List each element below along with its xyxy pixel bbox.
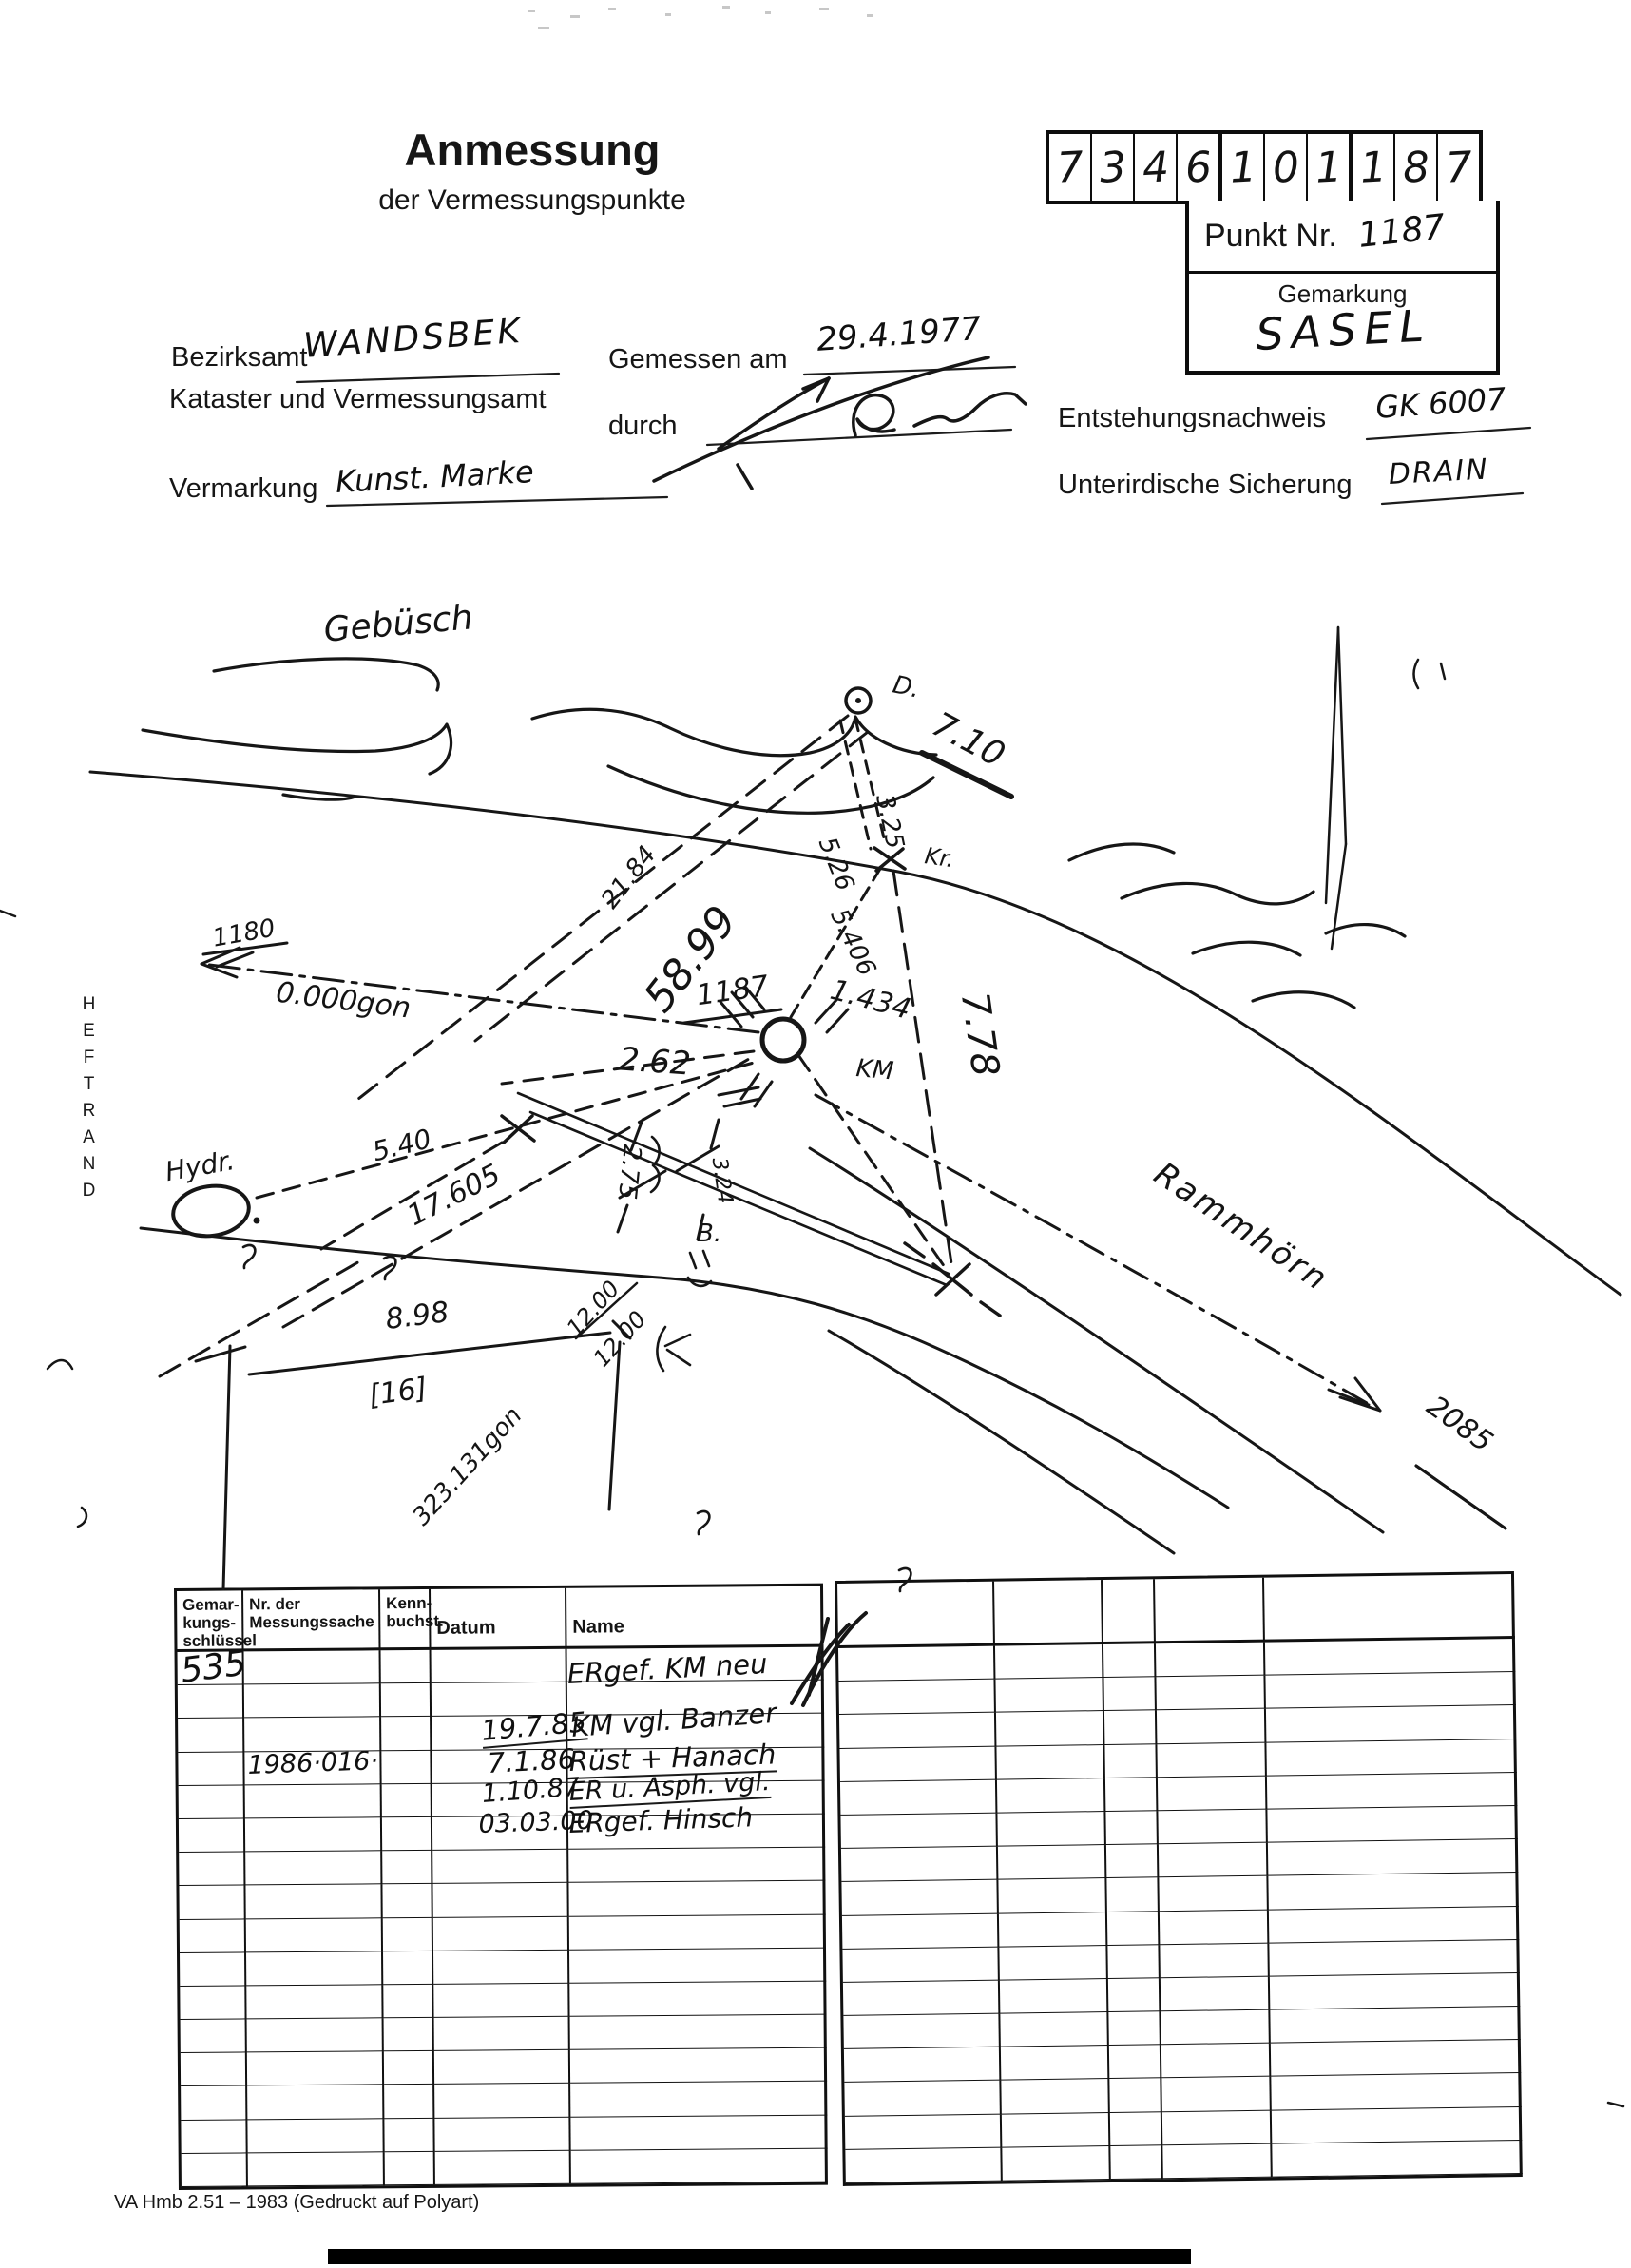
- table-cell: [1270, 2007, 1520, 2044]
- table-cell: [245, 1817, 382, 1852]
- table-cell: [1002, 2113, 1110, 2148]
- code-digit-cell: 4: [1135, 134, 1178, 201]
- page-subtitle: der Vermessungspunkte: [285, 184, 779, 217]
- table-cell: [996, 1711, 1104, 1746]
- table-cell: [1104, 1711, 1157, 1745]
- table-cell: [843, 2014, 1000, 2049]
- table-cell: [432, 1883, 568, 1917]
- bezirksamt-value: WANDSBEK: [302, 312, 524, 366]
- sketch-label-point-d-height: 7.10: [926, 705, 1011, 776]
- sketch-label-1180: 1180: [210, 914, 277, 953]
- x2-cross: [905, 1243, 1000, 1316]
- table-cell: [1160, 1910, 1269, 1945]
- entry-schluessel-row1: 535: [179, 1644, 248, 1691]
- table-cell: [841, 1847, 998, 1882]
- table-cell: [384, 2118, 434, 2152]
- table-cell: [1268, 1839, 1518, 1876]
- table-cell: [569, 1981, 826, 2016]
- entry-name-row6: ERgef. Hinsch: [568, 1801, 754, 1839]
- table-cell: [244, 1683, 381, 1718]
- table-cell: [382, 1884, 432, 1918]
- table-cell: [569, 1948, 826, 1983]
- table-cell: [432, 1850, 568, 1884]
- table-cell: [1106, 1878, 1159, 1912]
- table-cell: [434, 2117, 570, 2151]
- sketch-label-5-406: 5.406: [824, 904, 881, 980]
- table-cell: [1161, 1977, 1270, 2012]
- sketch-label-323gon: 323.131gon: [408, 1401, 528, 1530]
- table-cell: [571, 2148, 828, 2183]
- table-cell: [382, 1784, 432, 1818]
- table-cell: [1159, 1876, 1268, 1912]
- sketch-label-8-98: 8.98: [384, 1296, 451, 1336]
- table-cell: [840, 1779, 997, 1815]
- table-cell: [1110, 2112, 1162, 2146]
- table-header-kennbuchstabe: Kenn- buchst.: [380, 1589, 432, 1650]
- sketch-label-12-00-b: 12.00: [588, 1306, 652, 1373]
- table-cell: [247, 2052, 384, 2086]
- table-cell: [845, 2114, 1002, 2149]
- x3-cross: [502, 1116, 534, 1143]
- point-1187-symbol: [684, 987, 848, 1106]
- table-cell: [383, 1951, 433, 1986]
- table-cell: [1001, 2046, 1109, 2081]
- sicherung-value: DRAIN: [1388, 452, 1489, 490]
- code-digit: 7: [1444, 143, 1473, 192]
- table-cell: [568, 1848, 825, 1883]
- code-digit-cell: 8: [1395, 134, 1438, 201]
- table-cell: [1270, 1973, 1520, 2010]
- code-digit-cell: 3: [1092, 134, 1135, 201]
- table-cell: [383, 1985, 433, 2019]
- table-cell: [569, 1914, 826, 1950]
- table-cell: [1002, 2146, 1110, 2182]
- code-digit-cell: 0: [1265, 134, 1308, 201]
- table-cell: [1103, 1579, 1156, 1644]
- sketch-label-km: KM: [854, 1054, 894, 1086]
- table-cell: [181, 2086, 247, 2121]
- table-cell: [182, 2153, 248, 2187]
- table-cell: [179, 1818, 245, 1853]
- code-digit: 6: [1183, 143, 1213, 192]
- table-cell: [432, 1649, 567, 1683]
- point-number-box: Punkt Nr. 1187 Gemarkung SASEL: [1185, 201, 1500, 375]
- table-cell: [844, 2081, 1001, 2116]
- table-cell: [845, 2147, 1002, 2182]
- table-cell: [1107, 1912, 1160, 1946]
- code-digit-cell: 1: [1353, 134, 1395, 201]
- point-d-symbol: [846, 688, 1011, 797]
- table-cell: [181, 2019, 247, 2053]
- table-cell: [841, 1880, 998, 1915]
- table-cell: [1269, 1940, 1519, 1977]
- durch-label: durch: [608, 411, 678, 442]
- bush-strokes: [143, 659, 1405, 1008]
- table-header-name: Name: [566, 1586, 823, 1649]
- table-cell: [1158, 1776, 1267, 1811]
- table-cell: [433, 1916, 569, 1951]
- kataster-line: Kataster und Vermessungsamt: [169, 384, 547, 415]
- sketch-label-16: [16]: [367, 1372, 430, 1413]
- table-cell: [178, 1752, 244, 1786]
- table-cell: [1272, 2141, 1522, 2178]
- code-digit-cell: 7: [1049, 134, 1092, 201]
- table-cell: [382, 1851, 432, 1885]
- sketch-label-3-25: 3.25: [870, 792, 909, 852]
- table-cell: [1271, 2073, 1521, 2110]
- table-cell: [840, 1814, 997, 1849]
- table-cell: [838, 1680, 995, 1715]
- table-cell: [1265, 1639, 1515, 1676]
- table-cell: [1272, 2107, 1522, 2144]
- table-cell: [435, 2151, 571, 2185]
- table-cell: [1269, 1906, 1519, 1943]
- table-cell: [996, 1745, 1104, 1780]
- table-cell: [1105, 1778, 1158, 1812]
- table-cell: [839, 1746, 996, 1781]
- table-header-messungssache: Nr. der Messungssache: [243, 1589, 380, 1651]
- sketch-label-2085: 2085: [1420, 1390, 1498, 1459]
- table-cell: [433, 1950, 569, 1984]
- road-centerline-rammhoern: [815, 1095, 1506, 1528]
- table-cell: [1162, 2110, 1272, 2145]
- table-cell: [844, 2047, 1001, 2083]
- table-cell: [434, 2050, 570, 2085]
- table-cell: [1000, 2012, 1108, 2047]
- sketch-label-gebuesch: Gebüsch: [322, 598, 474, 650]
- table-cell: [1103, 1677, 1156, 1711]
- code-digit: 3: [1098, 143, 1127, 192]
- gemessen-am-label: Gemessen am: [608, 344, 788, 375]
- heftrand-margin-label: HEFTRAND: [78, 994, 99, 1207]
- table-cell: [1109, 2079, 1161, 2113]
- table-cell: [382, 1817, 432, 1852]
- table-cell: [381, 1750, 432, 1784]
- code-digit-cell: 7: [1438, 134, 1479, 201]
- measurement-history-table-continuation: [835, 1571, 1523, 2186]
- table-cell: [839, 1713, 996, 1748]
- table-cell: [1108, 1978, 1161, 2012]
- sketch-label-2-75: 2.75: [612, 1143, 646, 1201]
- table-cell: [246, 1985, 383, 2019]
- table-cell: [1158, 1810, 1267, 1845]
- table-cell: [842, 1947, 999, 1982]
- table-cell: [180, 1919, 246, 1953]
- table-cell: [1157, 1742, 1266, 1778]
- point-code-grid: 7 3 4 6 1 0 1 1 8 7: [1046, 130, 1483, 204]
- table-cell: [1109, 2045, 1161, 2079]
- table-cell: [570, 2082, 827, 2117]
- table-cell: [381, 1650, 432, 1684]
- table-cell: [1108, 2011, 1161, 2046]
- table-cell: [1107, 1945, 1160, 1979]
- sketch-label-12-00-a: 12.00: [562, 1276, 625, 1342]
- table-cell: [1159, 1843, 1268, 1878]
- code-digit: 1: [1314, 143, 1343, 192]
- table-cell: [381, 1683, 432, 1718]
- table-cell: [1110, 2145, 1162, 2180]
- code-digit-cell: 6: [1178, 134, 1222, 201]
- table-cell: [570, 2048, 827, 2084]
- table-cell: [998, 1878, 1106, 1913]
- table-header-gemarkungsschluessel: Gemar- kungs- schlüssel: [177, 1590, 244, 1652]
- table-cell: [383, 1917, 433, 1951]
- table-cell: [244, 1650, 381, 1684]
- top-edge-specks: [528, 6, 873, 29]
- needle-mark: [1326, 627, 1346, 949]
- scan-edge-bar: [328, 2249, 1191, 2264]
- table-cell: [994, 1580, 1103, 1646]
- table-cell: [1155, 1578, 1265, 1644]
- table-cell: [245, 1885, 382, 1919]
- code-digit: 4: [1141, 143, 1170, 192]
- table-cell: [995, 1678, 1103, 1713]
- entstehungsnachweis-label: Entstehungsnachweis: [1058, 403, 1326, 434]
- curve-tick-marks: [243, 1245, 911, 1591]
- table-cell: [434, 2017, 570, 2051]
- table-cell: [1161, 2010, 1270, 2046]
- table-cell: [568, 1881, 825, 1916]
- table-cell: [1000, 1979, 1108, 2014]
- code-digit: 8: [1401, 143, 1430, 192]
- vermarkung-value: Kunst. Marke: [335, 453, 535, 500]
- table-cell: [1266, 1739, 1516, 1777]
- table-cell: [247, 2119, 384, 2153]
- code-digit: 1: [1228, 143, 1257, 192]
- punkt-nr-label: Punkt Nr.: [1204, 218, 1337, 255]
- sketch-label-0gon: 0.000gon: [274, 976, 413, 1026]
- table-cell: [843, 1980, 1000, 2015]
- table-cell: [1271, 2040, 1521, 2077]
- table-cell: [1264, 1574, 1515, 1643]
- sketch-label-17-605: 17.605: [402, 1158, 506, 1233]
- anmessung-form-page: Anmessung der Vermessungspunkte 7 3 4 6 …: [0, 0, 1631, 2268]
- table-cell: [385, 2152, 435, 2186]
- gemarkung-value: SASEL: [1255, 299, 1432, 360]
- table-cell: [1161, 2077, 1271, 2112]
- table-cell: [179, 1785, 245, 1819]
- table-cell: [1106, 1844, 1159, 1878]
- table-cell: [245, 1784, 382, 1818]
- table-cell: [434, 2084, 570, 2118]
- table-cell: [838, 1646, 995, 1682]
- code-digit-cell: 1: [1222, 134, 1265, 201]
- entstehungsnachweis-value: GK 6007: [1374, 380, 1507, 425]
- sketch-label-kr: Kr.: [923, 842, 956, 873]
- table-cell: [570, 2115, 827, 2150]
- gemessen-am-value: 29.4.1977: [815, 310, 982, 359]
- table-cell: [837, 1582, 995, 1648]
- code-digit: 7: [1055, 143, 1084, 192]
- form-footer-note: VA Hmb 2.51 – 1983 (Gedruckt auf Polyart…: [114, 2192, 479, 2214]
- code-digit: 1: [1358, 143, 1388, 192]
- vermarkung-label: Vermarkung: [169, 473, 317, 505]
- boundary-lines: [90, 772, 1621, 1553]
- entry-sache-row4: 1986·016·: [247, 1746, 378, 1780]
- sketch-label-b: B.: [697, 1220, 721, 1248]
- table-cell: [384, 2018, 434, 2052]
- table-cell: [381, 1717, 432, 1751]
- table-cell: [1267, 1773, 1517, 1810]
- sketch-label-1187: 1187: [694, 970, 770, 1012]
- signature-stroke: [654, 357, 1026, 489]
- sketch-label-point-d: D.: [891, 671, 923, 704]
- table-cell: [1162, 2143, 1272, 2179]
- sketch-label-1-434: 1.434: [827, 973, 914, 1027]
- sketch-label-2-62: 2.62: [618, 1040, 692, 1083]
- table-cell: [248, 2152, 385, 2186]
- table-cell: [995, 1644, 1103, 1680]
- table-cell: [997, 1812, 1105, 1847]
- table-cell: [247, 2085, 384, 2120]
- table-cell: [1268, 1873, 1518, 1910]
- table-cell: [1001, 2079, 1109, 2114]
- table-cell: [1157, 1709, 1266, 1744]
- table-cell: [180, 1986, 246, 2020]
- dashed-measure-lines: [160, 716, 952, 1376]
- table-cell: [1265, 1672, 1515, 1709]
- table-cell: [570, 2015, 827, 2050]
- table-cell: [247, 2018, 384, 2052]
- code-digit-cell: 1: [1308, 134, 1353, 201]
- boundary-rectangle: [196, 1283, 637, 1589]
- table-cell: [1160, 1943, 1269, 1978]
- table-header-datum: Datum: [431, 1588, 566, 1650]
- table-cell: [245, 1851, 382, 1885]
- sketch-label-58-99: 58.99: [635, 897, 747, 1022]
- table-cell: [842, 1913, 999, 1949]
- table-cell: [181, 2120, 247, 2154]
- bezirksamt-label: Bezirksamt: [171, 342, 307, 374]
- sketch-label-5-40: 5.40: [369, 1123, 433, 1167]
- table-cell: [433, 1984, 569, 2018]
- sketch-label-3-24: 3.24: [707, 1156, 738, 1205]
- page-title: Anmessung: [285, 124, 779, 176]
- sketch-label-hydr: Hydr.: [163, 1144, 237, 1187]
- table-cell: [180, 1952, 246, 1987]
- pt2085-underline: [1416, 1466, 1506, 1528]
- table-cell: [998, 1845, 1106, 1880]
- table-cell: [1161, 2044, 1271, 2079]
- table-cell: [246, 1918, 383, 1952]
- table-cell: [384, 2051, 434, 2085]
- sketch-label-5-26: 5.26: [813, 834, 860, 895]
- table-cell: [246, 1951, 383, 1986]
- table-cell: [999, 1946, 1107, 1981]
- table-cell: [1156, 1676, 1265, 1711]
- table-cell: [181, 2053, 247, 2087]
- table-cell: [999, 1912, 1107, 1948]
- bearing-line-1180: [201, 943, 758, 1032]
- sketch-label-21-84: 21.84: [596, 841, 662, 914]
- table-cell: [179, 1853, 245, 1887]
- table-cell: [1105, 1811, 1158, 1845]
- table-cell: [179, 1886, 245, 1920]
- table-cell: [1103, 1643, 1156, 1678]
- hydrant-symbol: [170, 1182, 260, 1241]
- sketch-label-rammhoern: Rammhörn: [1147, 1155, 1336, 1299]
- table-cell: [384, 2085, 434, 2119]
- table-cell: [1156, 1643, 1265, 1678]
- unterirdische-sicherung-label: Unterirdische Sicherung: [1058, 470, 1352, 501]
- table-cell: [1104, 1744, 1157, 1778]
- code-digit: 0: [1271, 143, 1300, 192]
- punkt-nr-value: 1187: [1356, 207, 1447, 255]
- table-cell: [178, 1719, 244, 1753]
- table-cell: [1267, 1806, 1517, 1843]
- kr-cross: [874, 848, 905, 871]
- sketch-label-7-78: 7.78: [952, 990, 1007, 1080]
- table-cell: [997, 1778, 1105, 1814]
- table-cell: [1266, 1705, 1516, 1742]
